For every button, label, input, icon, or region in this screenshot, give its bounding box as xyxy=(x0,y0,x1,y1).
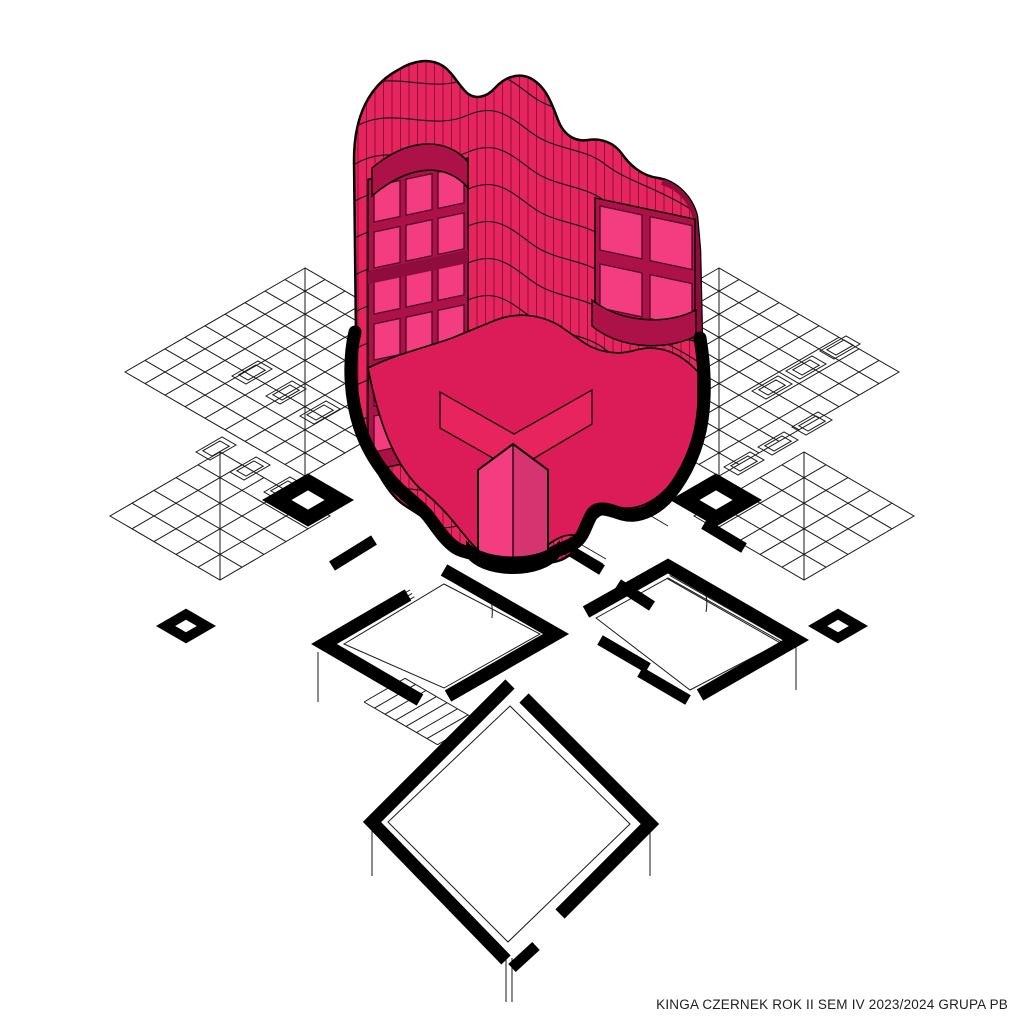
drawing-canvas: KINGA CZERNEK ROK II SEM IV 2023/2024 GR… xyxy=(0,0,1024,1024)
floor-plan-walls xyxy=(324,524,796,968)
caption-text: KINGA CZERNEK ROK II SEM IV 2023/2024 GR… xyxy=(656,997,1008,1012)
axonometric-drawing: KINGA CZERNEK ROK II SEM IV 2023/2024 GR… xyxy=(0,0,1024,1024)
plan-thin-details xyxy=(318,500,796,1002)
